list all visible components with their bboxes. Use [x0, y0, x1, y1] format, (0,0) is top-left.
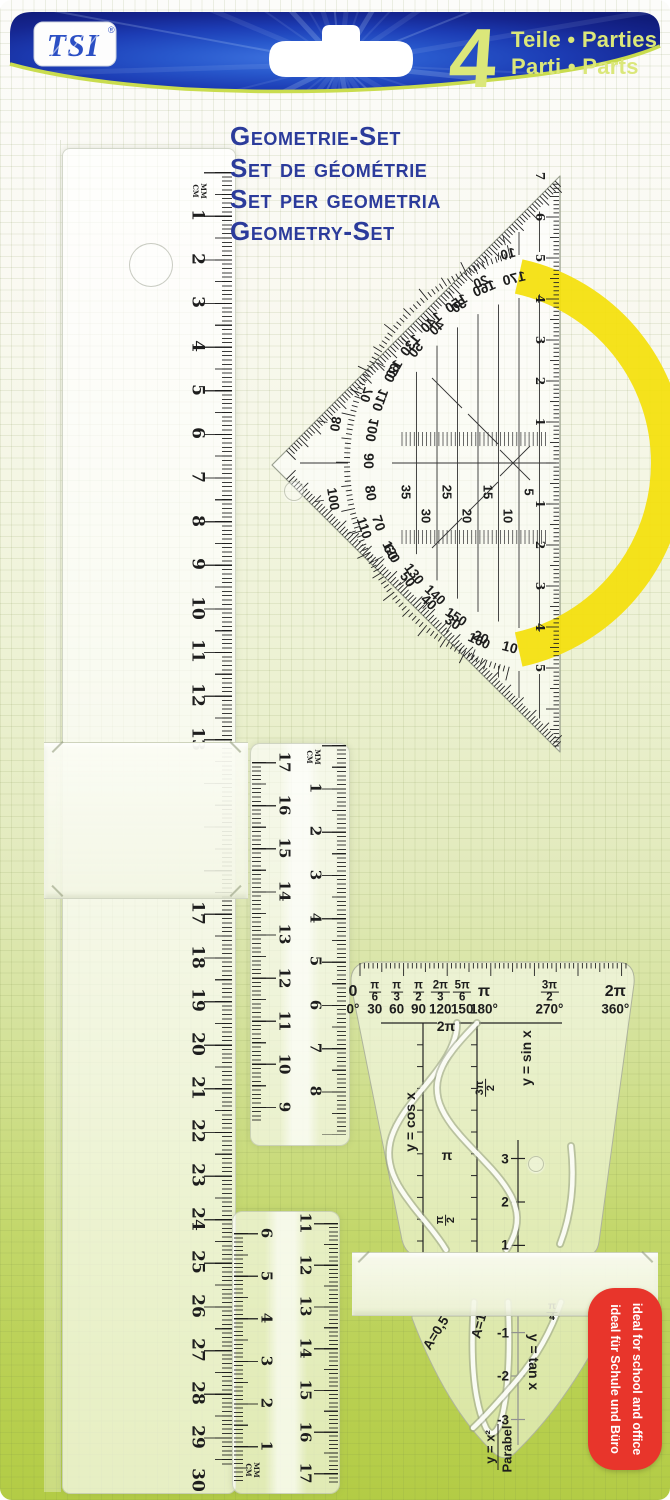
template-hole: [528, 1156, 544, 1172]
arc-hatch-tick: [441, 278, 446, 286]
protractor-body: [272, 176, 560, 752]
arc-hatch-tick: [452, 276, 455, 281]
arc-hatch-tick: [379, 345, 384, 348]
title-en: Geometry-Set: [230, 216, 441, 248]
arc-hatch-tick: [446, 642, 449, 647]
arc-hatch-tick: [427, 628, 431, 633]
protractor-set-square: [250, 160, 580, 772]
arc-hatch-tick: [439, 284, 442, 289]
product-photo-card: 1234567891011121317181920212223242526272…: [0, 0, 670, 1500]
protractor-hole: [284, 481, 304, 501]
arc-hatch-tick: [374, 353, 379, 356]
arc-hatch-tick: [382, 341, 387, 344]
arc-hatch-tick: [402, 606, 406, 610]
arc-hatch-tick: [419, 622, 423, 627]
arc-hatch-tick: [372, 357, 377, 360]
arc-hatch-tick: [419, 289, 428, 300]
arc-hatch-tick: [384, 585, 389, 588]
arc-hatch-tick: [393, 325, 398, 329]
arc-hatch-tick: [373, 573, 382, 578]
piece-count: 4: [446, 11, 500, 105]
arc-hatch-tick: [417, 301, 421, 305]
title-de: Geometrie-Set: [230, 121, 441, 153]
blister-band-left: [44, 742, 248, 899]
arc-hatch-tick: [416, 619, 420, 623]
arc-hatch-tick: [420, 298, 424, 303]
arc-hatch-tick: [378, 577, 383, 580]
arc-hatch-tick: [388, 333, 393, 337]
arc-hatch-tick: [440, 639, 445, 647]
arc-hatch-tick: [403, 315, 407, 319]
arc-hatch-tick: [402, 610, 409, 617]
arc-hatch-tick: [393, 596, 398, 600]
arc-hatch-tick: [428, 292, 432, 297]
brand-logo: TSI: [47, 27, 100, 63]
arc-hatch-tick: [409, 613, 413, 617]
count-line-2: Parti • Parts: [511, 54, 639, 80]
arc-hatch-tick: [403, 308, 410, 315]
title-it: Set per geometria: [230, 184, 441, 216]
count-line-1: Teile • Parties: [511, 27, 657, 53]
arc-hatch-tick: [418, 625, 427, 636]
ruler-17cm-lower: [232, 1211, 340, 1494]
arc-hatch-tick: [410, 308, 414, 312]
arc-hatch-tick: [373, 347, 381, 352]
arc-hatch-tick: [430, 631, 434, 636]
arc-hatch-tick: [345, 443, 351, 444]
arc-hatch-tick: [399, 603, 403, 607]
title-fr: Set de géométrie: [230, 153, 441, 185]
arc-hatch-tick: [448, 279, 451, 284]
arc-hatch-tick: [385, 337, 390, 341]
arc-hatch-tick: [434, 634, 437, 639]
usage-badge: ideal for school and office ideal für Sc…: [588, 1288, 662, 1470]
ruler-17cm-upper: [250, 743, 350, 1146]
arc-hatch-tick: [412, 616, 416, 620]
product-titles: Geometrie-Set Set de géométrie Set per g…: [230, 121, 441, 247]
arc-hatch-tick: [436, 286, 439, 291]
badge-line-en: ideal for school and office: [625, 1287, 647, 1471]
arc-hatch-tick: [400, 318, 404, 322]
arc-hatch-tick: [438, 636, 441, 641]
arc-hatch-tick: [432, 289, 436, 294]
trig-template-body: [351, 962, 634, 1256]
arc-hatch-tick: [381, 581, 386, 584]
usage-badge-text: ideal for school and office ideal für Sc…: [603, 1287, 647, 1471]
arc-hatch-tick: [413, 305, 417, 309]
arc-hatch-tick: [397, 322, 402, 326]
badge-line-de: ideal für Schule und Büro: [603, 1287, 625, 1471]
ruler-hole: [129, 243, 173, 287]
arc-hatch-tick: [396, 599, 401, 603]
registered-mark: ®: [108, 25, 115, 35]
arc-hatch-tick: [345, 481, 351, 482]
arc-hatch-tick: [387, 588, 392, 592]
